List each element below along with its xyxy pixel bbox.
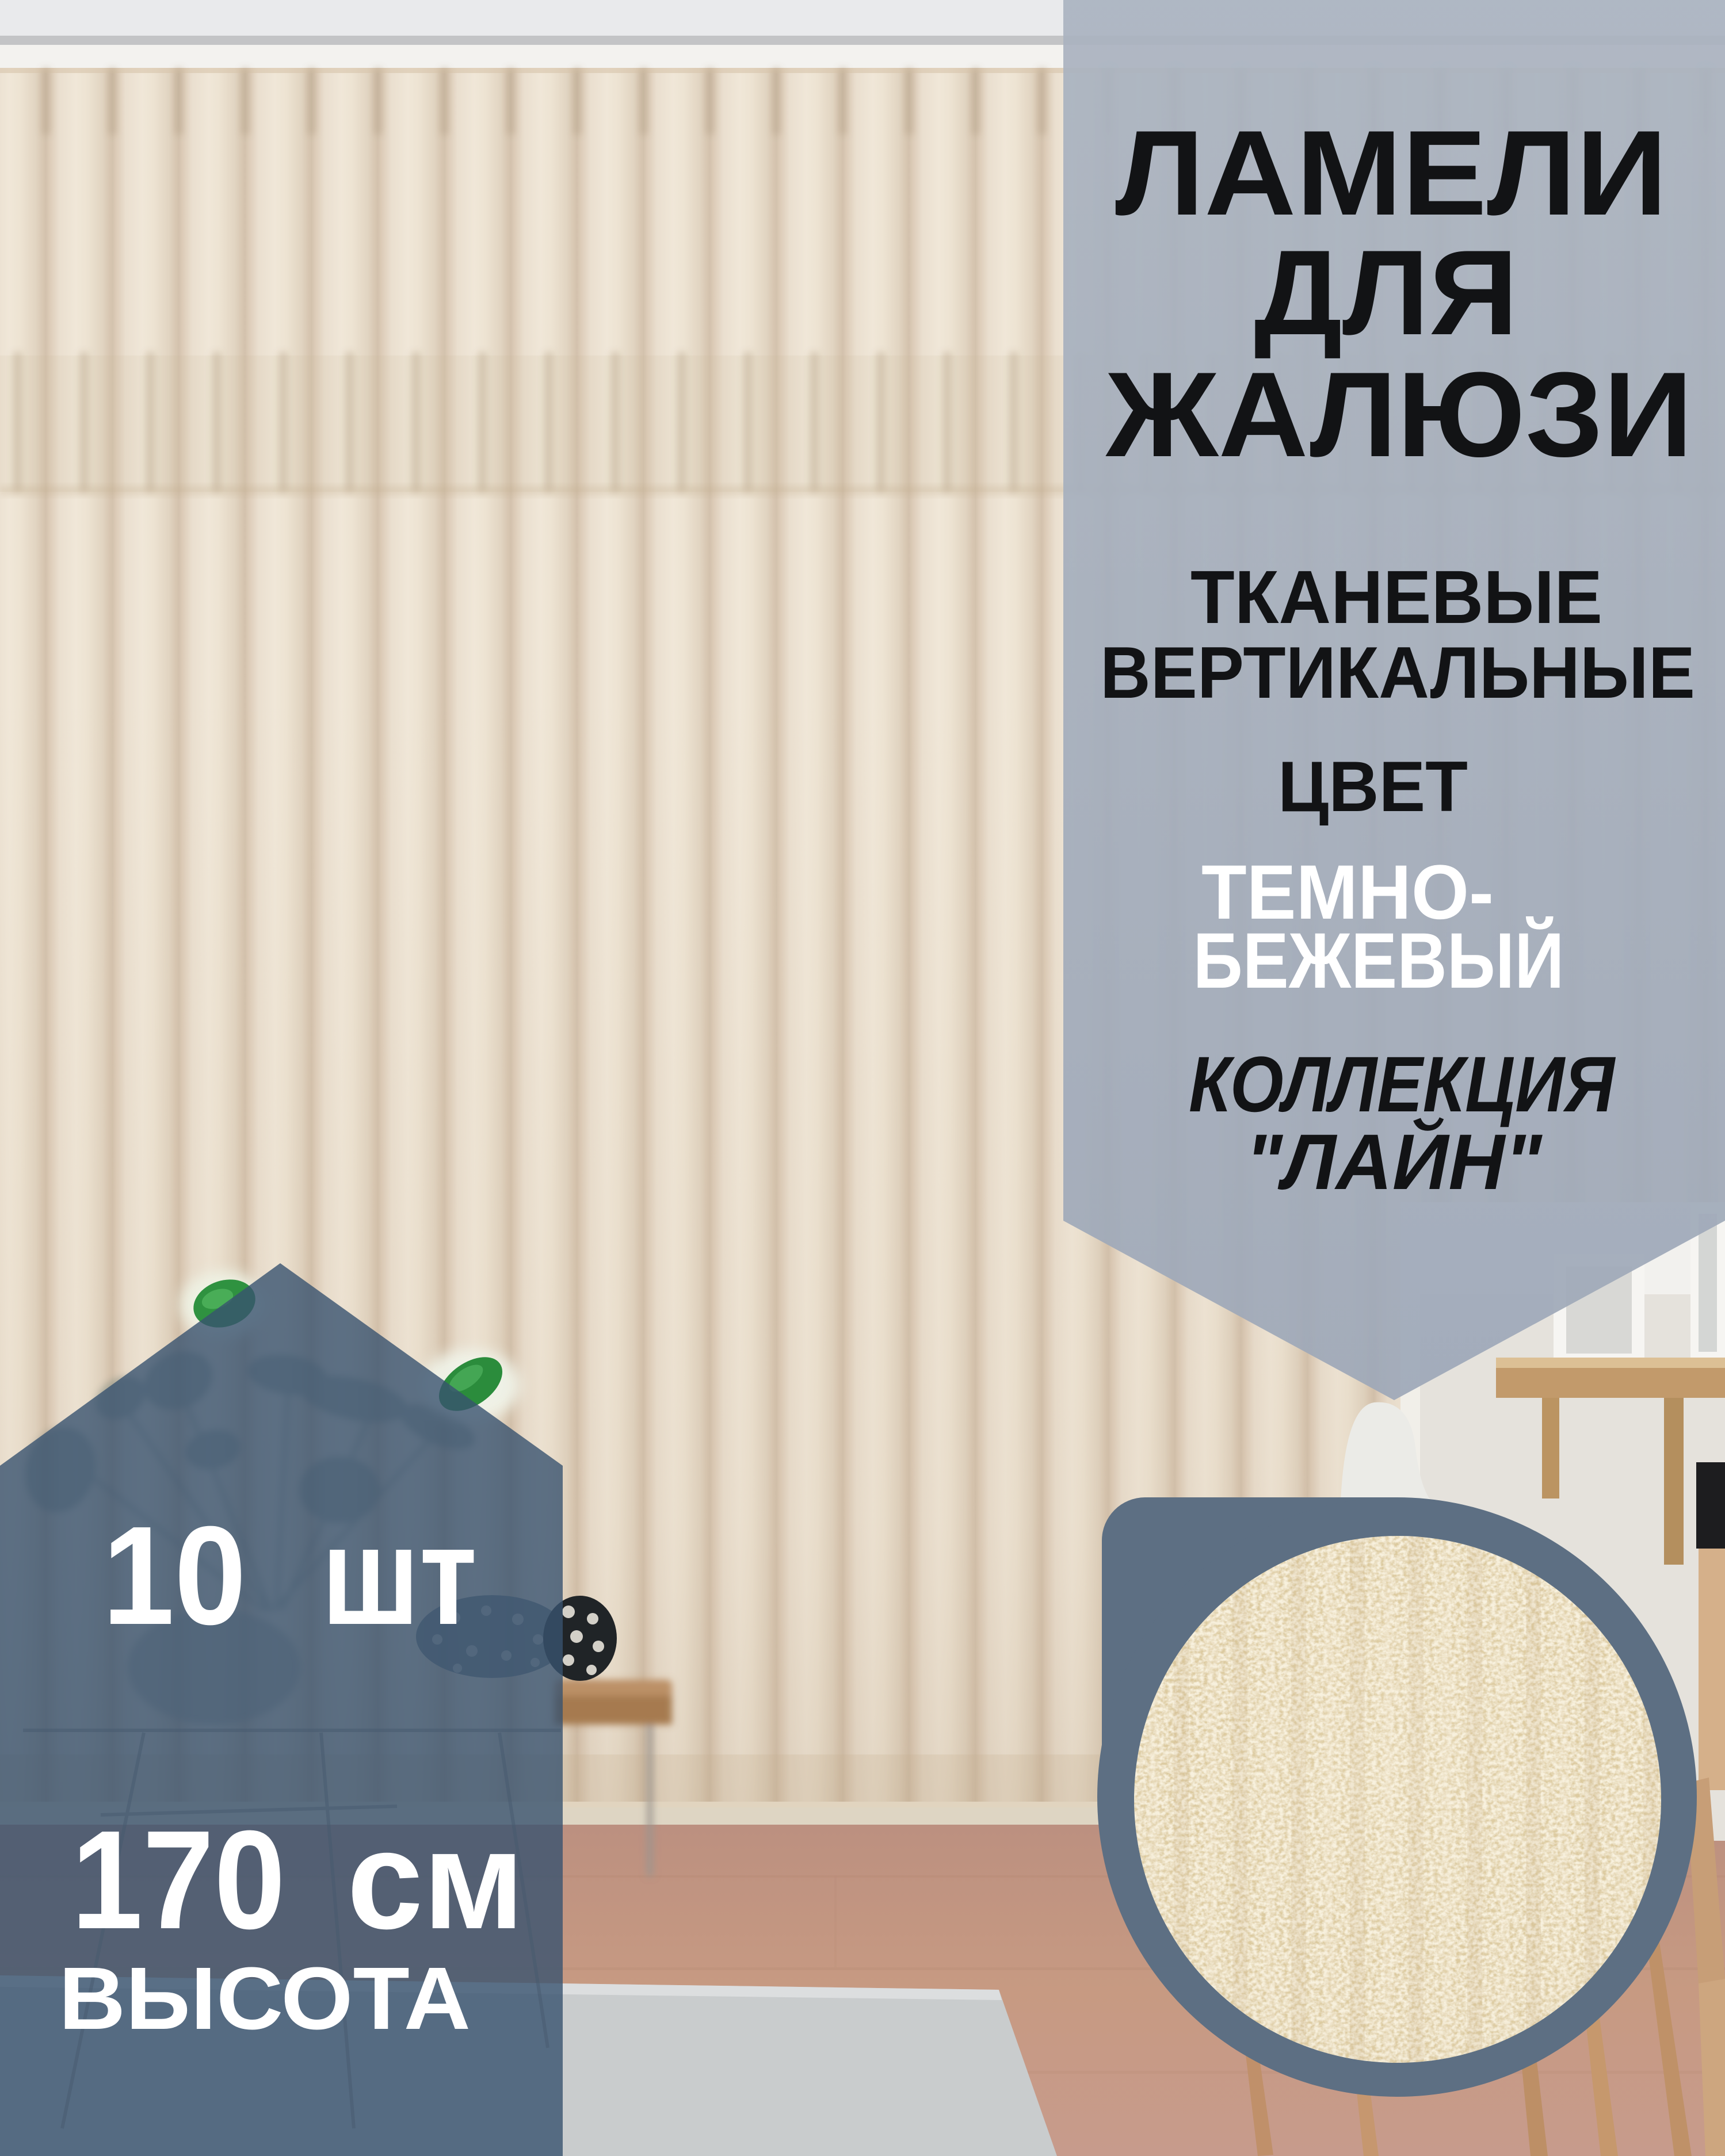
svg-text:шт: шт xyxy=(322,1497,477,1654)
svg-text:ЦВЕТ: ЦВЕТ xyxy=(1278,747,1468,827)
svg-text:БЕЖЕВЫЙ: БЕЖЕВЫЙ xyxy=(1193,916,1564,1005)
svg-text:"ЛАЙН": "ЛАЙН" xyxy=(1246,1117,1543,1206)
svg-text:ВЕРТИКАЛЬНЫЕ: ВЕРТИКАЛЬНЫЕ xyxy=(1100,632,1695,713)
svg-text:КОЛЛЕКЦИЯ: КОЛЛЕКЦИЯ xyxy=(1189,1041,1616,1129)
svg-text:ТКАНЕВЫЕ: ТКАНЕВЫЕ xyxy=(1190,555,1602,639)
svg-text:ЛАМЕЛИ: ЛАМЕЛИ xyxy=(1115,105,1667,240)
svg-text:ВЫСОТА: ВЫСОТА xyxy=(59,1949,471,2048)
svg-text:см: см xyxy=(347,1801,524,1958)
svg-text:10: 10 xyxy=(102,1497,246,1654)
svg-text:ДЛЯ: ДЛЯ xyxy=(1254,225,1518,360)
svg-text:170: 170 xyxy=(71,1801,285,1958)
svg-text:ЖАЛЮЗИ: ЖАЛЮЗИ xyxy=(1105,347,1693,482)
